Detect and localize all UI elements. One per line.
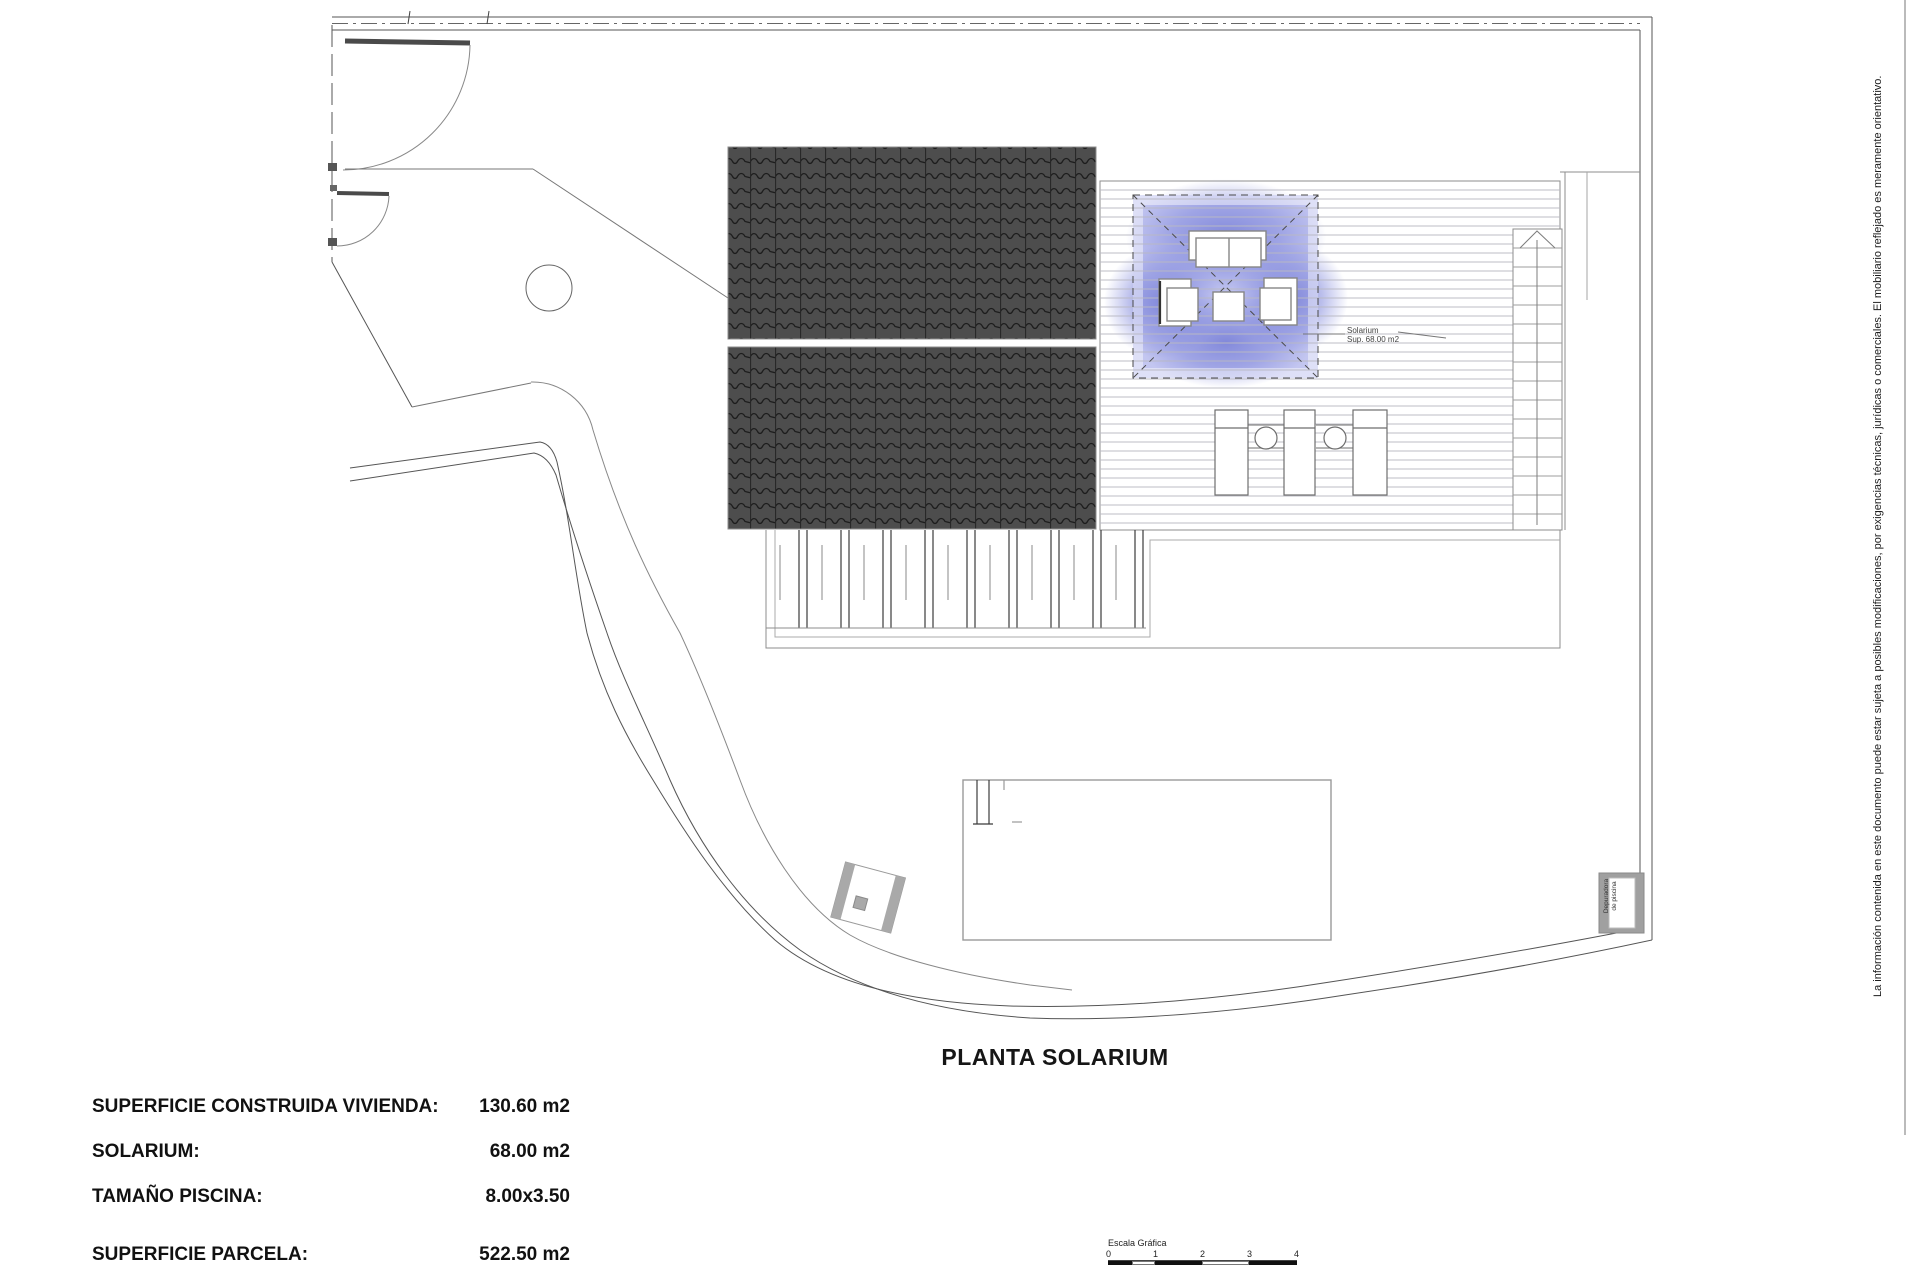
outdoor-structure	[831, 862, 906, 933]
summary-label: SUPERFICIE PARCELA:	[92, 1244, 308, 1266]
site-plan-drawing	[0, 0, 1920, 1280]
solarium-deck	[1100, 179, 1562, 530]
lounger	[1284, 410, 1315, 495]
gate-swing-arc-north	[343, 45, 470, 170]
gate-swing-arc-south	[337, 196, 389, 246]
summary-value: 522.50 m2	[479, 1244, 570, 1266]
summary-label: TAMAÑO PISCINA:	[92, 1186, 263, 1208]
plan-sheet: PLANTA SOLARIUM SUPERFICIE CONSTRUIDA VI…	[0, 0, 1920, 1280]
page-title: PLANTA SOLARIUM	[870, 1044, 1240, 1071]
scale-bar-segments	[1108, 1260, 1297, 1266]
lower-floor-window-wall	[766, 530, 1560, 648]
graphic-scale: Escala Gráfica 0 1 2 3 4	[1108, 1238, 1328, 1266]
legal-disclaimer-vertical: La información contenida en este documen…	[1872, 62, 1884, 997]
pool-filter-box	[1599, 873, 1644, 933]
side-table	[1255, 427, 1277, 449]
side-table	[1324, 427, 1346, 449]
table-row: SUPERFICIE CONSTRUIDA VIVIENDA: 130.60 m…	[92, 1096, 570, 1118]
table-row: SOLARIUM: 68.00 m2	[92, 1141, 570, 1163]
area-summary-table: SUPERFICIE CONSTRUIDA VIVIENDA: 130.60 m…	[92, 1096, 570, 1266]
gate-leaf-north	[345, 41, 470, 43]
solarium-area-note: Solarium Sup. 68.00 m2	[1347, 326, 1399, 344]
summary-value: 130.60 m2	[479, 1096, 570, 1118]
coffee-table	[1213, 292, 1244, 321]
north-boundary-road	[332, 11, 1652, 30]
sun-loungers	[1215, 410, 1387, 495]
summary-value: 8.00x3.50	[485, 1186, 570, 1208]
lounger	[1215, 410, 1248, 495]
upper-terrace-edge	[345, 169, 728, 407]
summary-label: SUPERFICIE CONSTRUIDA VIVIENDA:	[92, 1096, 439, 1118]
table-row: TAMAÑO PISCINA: 8.00x3.50	[92, 1186, 570, 1208]
west-boundary	[328, 25, 470, 407]
gate-leaf-south	[337, 193, 389, 194]
scale-label: Escala Gráfica	[1108, 1238, 1328, 1248]
scale-ticks: 0 1 2 3 4	[1108, 1249, 1328, 1259]
table-row: SUPERFICIE PARCELA: 522.50 m2	[92, 1244, 570, 1266]
lounger	[1353, 410, 1387, 495]
summary-value: 68.00 m2	[490, 1141, 570, 1163]
summary-label: SOLARIUM:	[92, 1141, 200, 1163]
swimming-pool	[963, 780, 1331, 940]
east-garden-strip	[1560, 172, 1640, 530]
roof-north	[728, 147, 1096, 339]
tree-symbol	[526, 265, 572, 311]
roof-south	[728, 347, 1096, 529]
staircase	[1513, 229, 1562, 530]
solarium-zone	[1104, 179, 1348, 388]
